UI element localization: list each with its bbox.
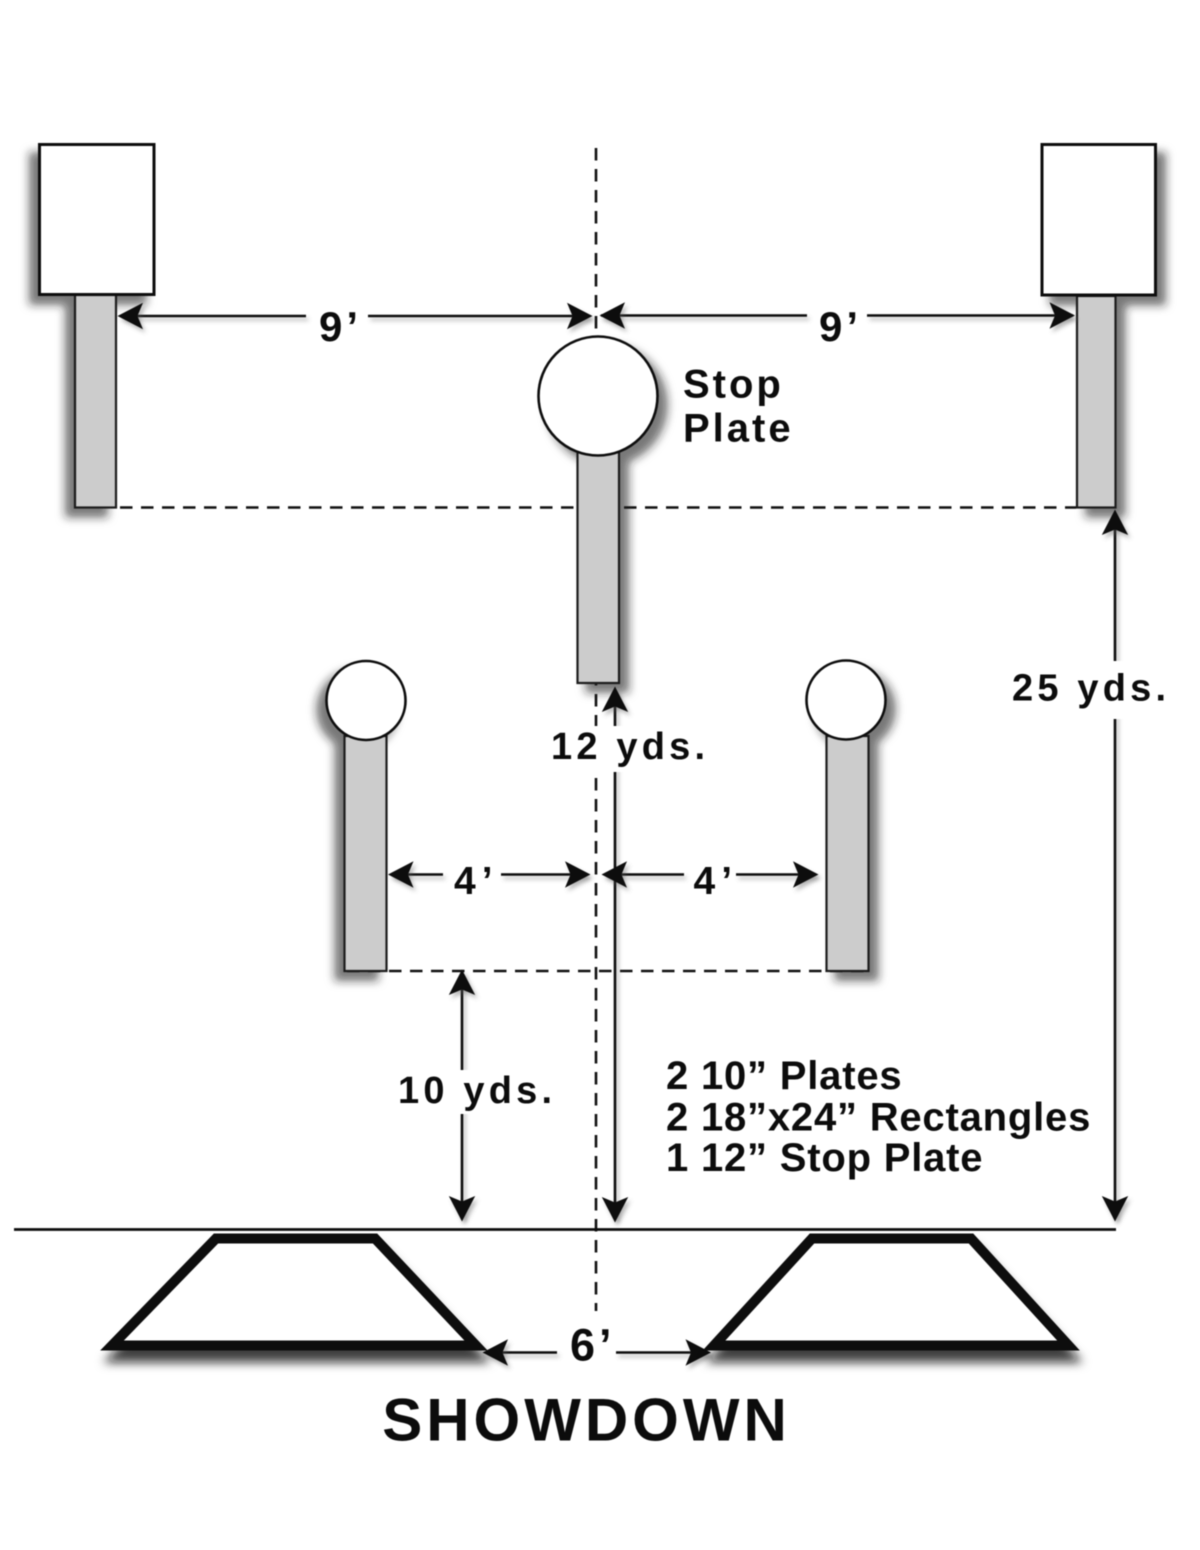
svg-text:4’: 4’ xyxy=(694,860,739,903)
svg-text:1 12” Stop Plate: 1 12” Stop Plate xyxy=(666,1136,983,1180)
svg-text:Stop: Stop xyxy=(683,363,784,407)
svg-text:12 yds.: 12 yds. xyxy=(551,726,709,768)
svg-text:2 10” Plates: 2 10” Plates xyxy=(666,1054,902,1098)
svg-text:Plate: Plate xyxy=(683,407,794,451)
svg-text:SHOWDOWN: SHOWDOWN xyxy=(382,1387,791,1454)
svg-text:6’: 6’ xyxy=(570,1320,616,1371)
svg-text:4’: 4’ xyxy=(454,860,499,903)
svg-text:2 18”x24” Rectangles: 2 18”x24” Rectangles xyxy=(666,1096,1091,1140)
svg-text:9’: 9’ xyxy=(319,303,362,350)
svg-text:10 yds.: 10 yds. xyxy=(398,1070,556,1112)
svg-text:25 yds.: 25 yds. xyxy=(1012,668,1170,710)
svg-text:9’: 9’ xyxy=(819,303,862,350)
